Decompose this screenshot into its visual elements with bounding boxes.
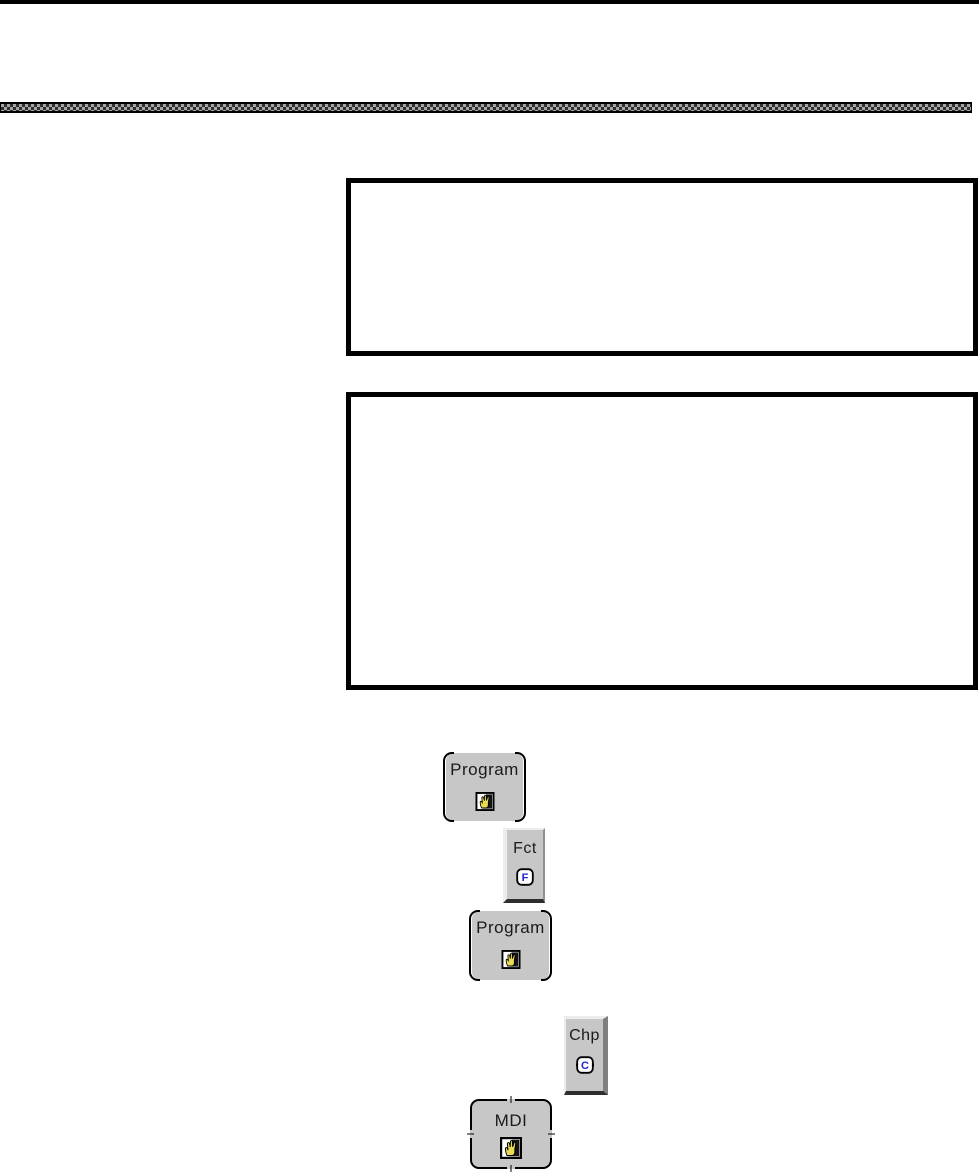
right-notch-mark: [550, 1130, 552, 1138]
hand-icon: [500, 1137, 522, 1164]
mdi-key-label: MDI: [472, 1112, 550, 1129]
mdi-key[interactable]: MDI: [470, 1099, 552, 1169]
hand-icon: [475, 792, 495, 816]
right-bracket-mark: [541, 910, 552, 981]
fct-key[interactable]: Fct F: [503, 828, 545, 903]
fct-key-label: Fct: [507, 841, 543, 857]
program-key-middle[interactable]: Program: [469, 910, 552, 981]
figure-frame-1: [346, 178, 978, 356]
right-bracket-mark: [515, 752, 526, 822]
chp-key-label: Chp: [566, 1028, 603, 1044]
figure-frame-2: [346, 392, 978, 690]
left-bracket-mark: [443, 752, 454, 822]
chp-icon-letter: C: [581, 1060, 589, 1072]
program-key-label: Program: [443, 761, 526, 778]
fct-icon-letter: F: [522, 872, 529, 884]
section-divider-rule: [0, 102, 972, 113]
bottom-notch-mark: [507, 1167, 515, 1169]
manual-page: Program Fct F Program: [0, 0, 979, 1173]
left-bracket-mark: [469, 910, 480, 981]
hand-icon: [501, 950, 521, 974]
top-notch-mark: [507, 1099, 515, 1101]
letter-f-icon: F: [516, 868, 534, 891]
program-key-top[interactable]: Program: [443, 752, 526, 822]
program-key-label: Program: [469, 919, 552, 936]
letter-c-icon: C: [575, 1056, 595, 1079]
left-notch-mark: [470, 1130, 472, 1138]
page-top-rule: [0, 0, 979, 4]
chp-key[interactable]: Chp C: [564, 1016, 608, 1095]
